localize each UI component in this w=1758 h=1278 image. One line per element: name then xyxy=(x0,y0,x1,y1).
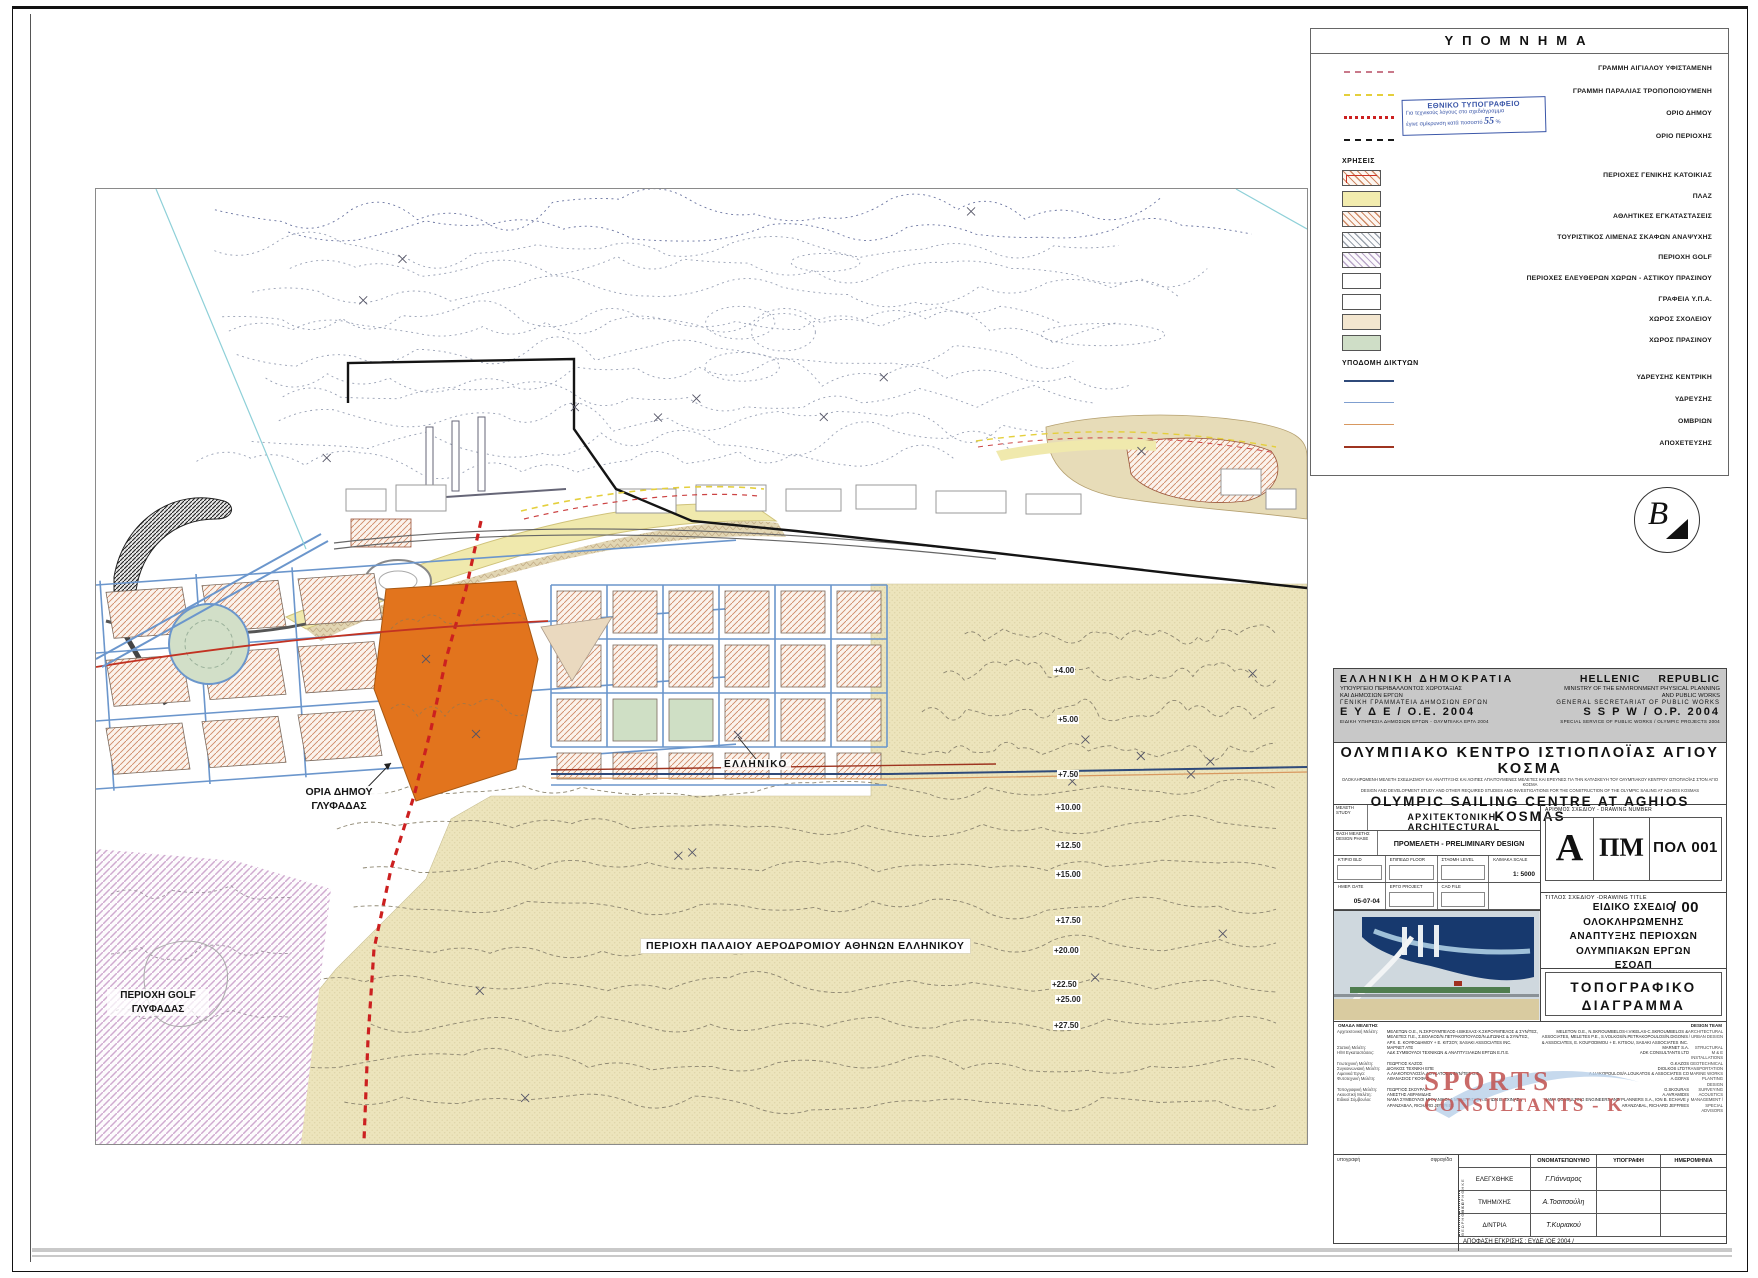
legend-swatch xyxy=(1342,191,1381,207)
date-value: 05-07-04 xyxy=(1354,898,1380,905)
legend-swatch xyxy=(1342,170,1381,186)
legend-network-item: ΥΔΡΕΥΣΗΣ xyxy=(1311,393,1728,415)
legend-uses-title: ΧΡΗΣΕΙΣ xyxy=(1342,158,1728,165)
legend-use-label: ΠΛΑΖ xyxy=(1693,193,1712,200)
drawing-number-box: ΑΡΙΘΜΟΣ ΣΧΕΔΙΟΥ - DRAWING NUMBER Α ΠΜ ΠΟ… xyxy=(1541,805,1726,893)
legend-line-label: ΓΡΑΜΜΗ ΠΑΡΑΛΙΑΣ ΤΡΟΠΟΠΟΙΟΥΜΕΝΗ xyxy=(1573,88,1712,95)
project-subtitle-greek: ΟΛΟΚΛΗΡΩΜΕΝΗ ΜΕΛΕΤΗ ΣΧΕΔΙΑΣΜΟΥ ΚΑΙ ΑΝΑΠΤ… xyxy=(1336,777,1724,788)
legend-network-items: ΥΔΡΕΥΣΗΣ ΚΕΝΤΡΙΚΗ ΥΔΡΕΥΣΗΣ ΟΜΒΡΙΩΝ ΑΠΟΧΕ… xyxy=(1311,371,1728,458)
legend-swatch xyxy=(1342,314,1381,330)
signature-row-checked: ΕΛΕΓΧΘΗΚΕ Γ.Γιάνναρος xyxy=(1459,1168,1726,1191)
legend-line-sample xyxy=(1344,116,1394,119)
b-logo: B xyxy=(1634,487,1700,553)
legend-use-label: ΠΕΡΙΟΧΕΣ ΕΛΕΥΘΕΡΩΝ ΧΩΡΩΝ - ΑΣΤΙΚΟΥ ΠΡΑΣΙ… xyxy=(1527,275,1712,282)
study-code: ΠΜ xyxy=(1594,818,1650,880)
legend-use-item: ΠΕΡΙΟΧΗ GOLF xyxy=(1311,251,1728,272)
project-subtitle-english: DESIGN AND DEVELOPMENT STUDY AND OTHER R… xyxy=(1336,788,1724,793)
legend-network-label: ΥΔΡΕΥΣΗΣ ΚΕΝΤΡΙΚΗ xyxy=(1637,374,1713,381)
legend-use-item: ΤΟΥΡΙΣΤΙΚΟΣ ΛΙΜΕΝΑΣ ΣΚΑΦΩΝ ΑΝΑΨΥΧΗΣ xyxy=(1311,231,1728,252)
legend-line-label: ΟΡΙΟ ΠΕΡΙΟΧΗΣ xyxy=(1656,133,1712,140)
authority-header: ΕΛΛΗΝΙΚΗ ΔΗΜΟΚΡΑΤΙΑ ΥΠΟΥΡΓΕΙΟ ΠΕΡΙΒΑΛΛΟΝ… xyxy=(1334,669,1726,743)
scale-value: 1: 5000 xyxy=(1513,871,1535,878)
legend-swatch xyxy=(1342,335,1381,351)
legend-line-sample xyxy=(1344,71,1394,73)
legend-swatch xyxy=(1342,273,1381,289)
label-leader xyxy=(360,763,391,795)
drawing-number: ΠΟΛ 001 / 00 xyxy=(1650,818,1721,880)
legend-use-item: ΠΛΑΖ xyxy=(1311,190,1728,211)
legend-line-sample xyxy=(1344,139,1394,141)
legend-network-sample xyxy=(1344,380,1394,382)
legend-use-label: ΠΕΡΙΟΧΕΣ ΓΕΝΙΚΗΣ ΚΑΤΟΙΚΙΑΣ xyxy=(1603,172,1712,179)
legend-network-sample xyxy=(1344,446,1394,448)
bottom-rule-2 xyxy=(32,1255,1732,1257)
signature-row-director: ΘΕΩΡΗΘΗΚΕΔ/ΝΤΡΙΑ Τ.Κυριακού xyxy=(1459,1214,1726,1237)
pier xyxy=(452,421,459,491)
national-printing-stamp: ΕΘΝΙΚΟ ΤΥΠΟΓΡΑΦΕΙΟ Για τεχνικούς λόγους … xyxy=(1402,96,1547,136)
legend-network-sample xyxy=(1344,424,1394,425)
phase-letter: Α xyxy=(1546,818,1594,880)
study-info-column: ΜΕΛΕΤΗSTUDY ΑΡΧΙΤΕΚΤΟΝΙΚΗ-ARCHITECTURAL … xyxy=(1334,805,1541,1021)
sports-block xyxy=(351,519,411,547)
legend-use-label: ΧΩΡΟΣ ΣΧΟΛΕΙΟΥ xyxy=(1649,316,1712,323)
legend-use-item: ΠΕΡΙΟΧΕΣ ΓΕΝΙΚΗΣ ΚΑΤΟΙΚΙΑΣ xyxy=(1311,169,1728,190)
project-title: ΟΛΥΜΠΙΑΚΟ ΚΕΝΤΡΟ ΙΣΤΙΟΠΛΟΪΑΣ ΑΓΙΟΥ ΚΟΣΜΑ… xyxy=(1334,743,1726,805)
drawing-number-label: ΑΡΙΘΜΟΣ ΣΧΕΔΙΟΥ - DRAWING NUMBER xyxy=(1541,805,1726,815)
drawing-type-box: ΤΟΠΟΓΡΑΦΙΚΟ ΔΙΑΓΡΑΜΜΑ xyxy=(1541,969,1726,1019)
signature-table: υπογραφή σφραγίδα ΟΝΟΜΑΤΕΠΩΝΥΜΟ ΥΠΟΓΡΑΦΗ… xyxy=(1334,1155,1726,1251)
signature-header-row: ΟΝΟΜΑΤΕΠΩΝΥΜΟ ΥΠΟΓΡΑΦΗ ΗΜΕΡΟΜΗΝΙΑ xyxy=(1459,1155,1726,1168)
legend-use-label: ΤΟΥΡΙΣΤΙΚΟΣ ΛΙΜΕΝΑΣ ΣΚΑΦΩΝ ΑΝΑΨΥΧΗΣ xyxy=(1557,234,1712,241)
legend-use-items: ΠΕΡΙΟΧΕΣ ΓΕΝΙΚΗΣ ΚΑΤΟΙΚΙΑΣ ΠΛΑΖ ΑΘΛΗΤΙΚΕ… xyxy=(1311,169,1728,354)
pier xyxy=(478,417,485,491)
title-block: ΕΛΛΗΝΙΚΗ ΔΗΜΟΚΡΑΤΙΑ ΥΠΟΥΡΓΕΙΟ ΠΕΡΙΒΑΛΛΟΝ… xyxy=(1333,668,1727,1244)
legend-use-item: ΓΡΑΦΕΙΑ Υ.Π.Α. xyxy=(1311,293,1728,314)
legend-networks-title: ΥΠΟΔΟΜΗ ΔΙΚΤΥΩΝ xyxy=(1342,360,1728,367)
legend-network-label: ΟΜΒΡΙΩΝ xyxy=(1678,418,1712,425)
triangle-icon xyxy=(1666,519,1688,539)
legend-use-item: ΠΕΡΙΟΧΕΣ ΕΛΕΥΘΕΡΩΝ ΧΩΡΩΝ - ΑΣΤΙΚΟΥ ΠΡΑΣΙ… xyxy=(1311,272,1728,293)
legend-network-label: ΑΠΟΧΕΤΕΥΣΗΣ xyxy=(1659,440,1712,447)
legend-network-item: ΟΜΒΡΙΩΝ xyxy=(1311,415,1728,437)
legend-swatch xyxy=(1342,294,1381,310)
legend-use-item: ΧΩΡΟΣ ΣΧΟΛΕΙΟΥ xyxy=(1311,313,1728,334)
signature-row-head: ΘΕΩΡΗΘΗΚΕΤΜΗΜ/ΧΗΣ Α.Τοσιτσούλη xyxy=(1459,1191,1726,1214)
stamp-signature-area: υπογραφή σφραγίδα xyxy=(1334,1155,1459,1251)
legend-use-label: ΓΡΑΦΕΙΑ Υ.Π.Α. xyxy=(1658,296,1712,303)
sports-consultants-logo: SPORTS CONSULTANTS - K xyxy=(1404,1052,1664,1132)
team-row: Αρχιτεκτονική Μελέτη: ΜΕΛΕΤΩΝ Ο.Ε., Ν.ΣΚ… xyxy=(1334,1029,1726,1045)
legend-use-label: ΧΩΡΟΣ ΠΡΑΣΙΝΟΥ xyxy=(1649,337,1712,344)
site-plan-thumbnail xyxy=(1334,910,1540,1020)
topographic-map xyxy=(95,188,1308,1145)
legend-swatch xyxy=(1342,232,1381,248)
legend-line-item: ΓΡΑΜΜΗ ΑΙΓΙΑΛΟΥ ΥΦΙΣΤΑΜΕΝΗ xyxy=(1311,62,1728,85)
legend-use-label: ΠΕΡΙΟΧΗ GOLF xyxy=(1658,254,1712,261)
team-header-greek: ΟΜΑΔΑ ΜΕΛΕΤΗΣ xyxy=(1338,1023,1378,1028)
legend-network-item: ΑΠΟΧΕΤΕΥΣΗΣ xyxy=(1311,437,1728,459)
legend-title: ΥΠΟΜΝΗΜΑ xyxy=(1311,29,1728,54)
legend-line-sample xyxy=(1344,94,1394,96)
legend-line-label: ΟΡΙΟ ΔΗΜΟΥ xyxy=(1666,110,1712,117)
authority-english: HELLENIC REPUBLIC MINISTRY OF THE ENVIRO… xyxy=(1530,669,1726,742)
drawing-title-box: ΤΙΤΛΟΣ ΣΧΕΔΙΟΥ -DRAWING TITLE ΕΙΔΙΚΟ ΣΧΕ… xyxy=(1541,893,1726,969)
roundabout-park xyxy=(169,604,249,684)
cyan-grid-line xyxy=(156,189,306,549)
team-header-english: DESIGN TEAM xyxy=(1691,1023,1722,1028)
legend-line-label: ΓΡΑΜΜΗ ΑΙΓΙΑΛΟΥ ΥΦΙΣΤΑΜΕΝΗ xyxy=(1598,65,1712,72)
legend-use-label: ΑΘΛΗΤΙΚΕΣ ΕΓΚΑΤΑΣΤΑΣΕΙΣ xyxy=(1613,213,1712,220)
map-drawing xyxy=(96,189,1307,1144)
phase-value: ΠΡΟΜΕΛΕΤΗ - PRELIMINARY DESIGN xyxy=(1378,831,1540,855)
stamp-percent: % xyxy=(1496,119,1501,125)
stamp-line3: έγινε σμίκρυνση κατά ποσοστό xyxy=(1406,120,1482,128)
legend-network-sample xyxy=(1344,402,1394,403)
golf-area xyxy=(96,849,331,1144)
stamp-value: 55 xyxy=(1484,115,1494,126)
legend-panel: ΥΠΟΜΝΗΜΑ ΓΡΑΜΜΗ ΑΙΓΙΑΛΟΥ ΥΦΙΣΤΑΜΕΝΗ ΓΡΑΜ… xyxy=(1310,28,1729,476)
page-inner-border xyxy=(30,14,31,1262)
authority-greek: ΕΛΛΗΝΙΚΗ ΔΗΜΟΚΡΑΤΙΑ ΥΠΟΥΡΓΕΙΟ ΠΕΡΙΒΑΛΛΟΝ… xyxy=(1334,669,1530,742)
legend-swatch xyxy=(1342,252,1381,268)
project-title-greek: ΟΛΥΜΠΙΑΚΟ ΚΕΝΤΡΟ ΙΣΤΙΟΠΛΟΪΑΣ ΑΓΙΟΥ ΚΟΣΜΑ xyxy=(1336,745,1724,777)
study-value: ΑΡΧΙΤΕΚΤΟΝΙΚΗ-ARCHITECTURAL xyxy=(1368,805,1540,830)
pier xyxy=(426,427,433,491)
legend-network-item: ΥΔΡΕΥΣΗΣ ΚΕΝΤΡΙΚΗ xyxy=(1311,371,1728,393)
legend-use-item: ΧΩΡΟΣ ΠΡΑΣΙΝΟΥ xyxy=(1311,334,1728,355)
legend-network-label: ΥΔΡΕΥΣΗΣ xyxy=(1675,396,1712,403)
design-team-box: ΟΜΑΔΑ ΜΕΛΕΤΗΣ DESIGN TEAM Αρχιτεκτονική … xyxy=(1334,1022,1726,1155)
legend-use-item: ΑΘΛΗΤΙΚΕΣ ΕΓΚΑΤΑΣΤΑΣΕΙΣ xyxy=(1311,210,1728,231)
legend-swatch xyxy=(1342,211,1381,227)
legend-line-item: ΟΡΙΟ ΠΕΡΙΟΧΗΣ xyxy=(1311,130,1728,153)
approval-decision: ΑΠΟΦΑΣΗ ΕΓΚΡΙΣΗΣ : ΕΥΔΕ /ΟΕ 2004 / xyxy=(1459,1237,1726,1250)
